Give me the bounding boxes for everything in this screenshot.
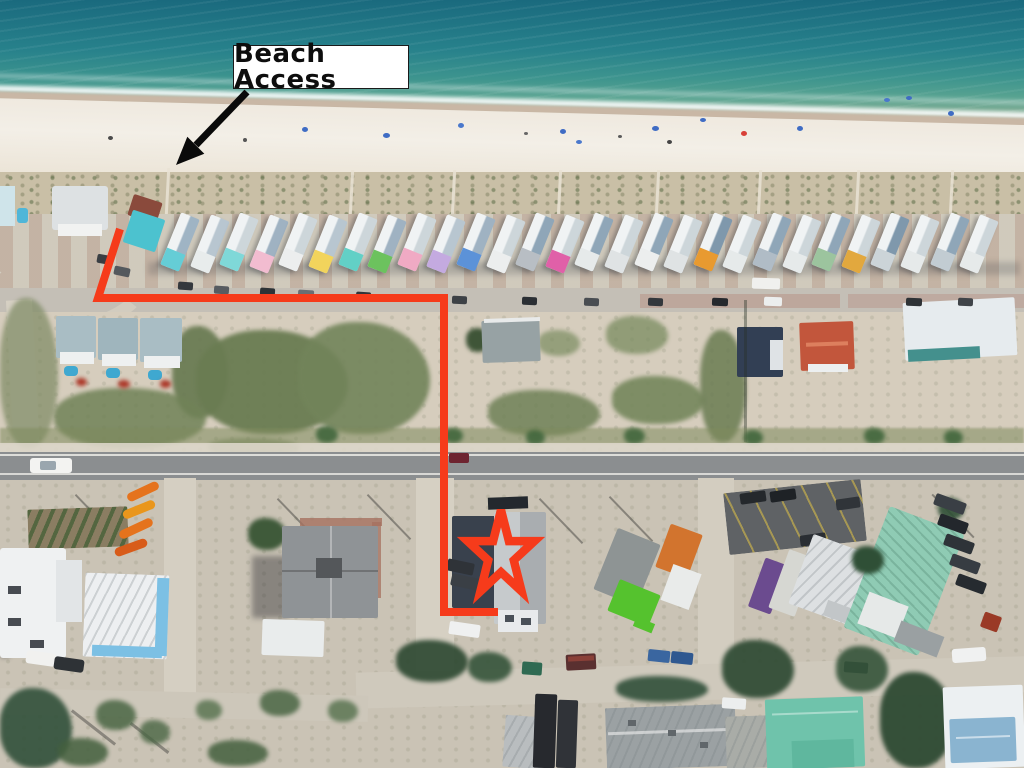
white-blue-house-roof (949, 717, 1016, 763)
car-maroon (449, 453, 469, 463)
white-shed (261, 619, 324, 657)
scrub (298, 322, 430, 434)
van-white (952, 647, 987, 663)
dark-trees (836, 646, 888, 692)
fence-shadow (744, 300, 747, 442)
car-dark (522, 297, 537, 306)
palm-tree (852, 546, 884, 574)
pool (64, 366, 78, 376)
car-gray (214, 285, 230, 294)
dark-trees (468, 652, 512, 682)
dark-trees (616, 676, 708, 702)
beach-umbrella-dot (560, 129, 566, 134)
gray-house-court (316, 558, 342, 578)
car-gray (584, 298, 599, 307)
pool (106, 368, 120, 378)
aerial-photo: Beach Access (0, 0, 1024, 768)
navy-building-porch (770, 340, 783, 370)
red-flowers (160, 380, 171, 388)
paver-tint (640, 294, 840, 308)
beach-umbrella-dot (383, 133, 390, 138)
car-blue (670, 651, 693, 665)
palm-tree (624, 428, 645, 444)
car-gray (298, 289, 315, 298)
shrub (208, 740, 268, 766)
shrub (328, 700, 358, 722)
beach-umbrella-dot (618, 135, 622, 138)
beach-umbrella-dot (797, 126, 803, 131)
window (8, 586, 21, 594)
garden-rows (27, 506, 128, 549)
beach-access-label: Beach Access (233, 45, 409, 89)
beach-umbrella-dot (302, 127, 308, 132)
dark-trees (396, 640, 468, 682)
sidewalk (0, 443, 1024, 452)
car-dark (452, 296, 467, 305)
car-dark (178, 281, 194, 290)
beach-umbrella-dot (948, 111, 954, 116)
scrub (606, 316, 668, 354)
palm-tree (444, 428, 463, 443)
car-dark (906, 298, 922, 307)
scrub (612, 376, 704, 424)
cottage-walls (144, 356, 180, 368)
beach-umbrella-dot (906, 96, 912, 100)
car-dark (356, 291, 372, 300)
trailer-dark (556, 700, 578, 768)
vent (668, 730, 676, 736)
subject-house-porch (498, 610, 538, 632)
scrub (538, 330, 580, 356)
road-edge-line (0, 454, 1024, 456)
solar-panels (488, 496, 528, 509)
beach-umbrella-dot (700, 118, 706, 122)
beach-umbrella-dot (576, 140, 582, 144)
car-dark (958, 298, 973, 307)
cottage-walls (60, 352, 94, 364)
teal-house-wing (792, 739, 855, 768)
beach-umbrella-dot (652, 126, 659, 131)
white-house-wing (56, 560, 82, 622)
beach-umbrella-dot (243, 138, 247, 142)
truck-white (764, 297, 782, 307)
car-blue (647, 649, 670, 663)
car-dark (712, 298, 728, 307)
pool (17, 208, 28, 223)
gray-building-roof (481, 319, 540, 363)
dumpster-teal (522, 661, 543, 675)
rv-white (752, 278, 780, 290)
red-roof-walls (808, 364, 848, 372)
tree (248, 518, 286, 550)
beach-umbrella-dot (524, 132, 528, 135)
car-windows (40, 461, 56, 470)
beach-umbrella-dot (667, 140, 672, 144)
cottage-walls (102, 354, 136, 366)
pool (148, 370, 162, 380)
porch-detail (505, 615, 514, 622)
road-edge-line (0, 473, 1024, 475)
red-flowers (76, 378, 87, 386)
beach-umbrella-dot (458, 123, 464, 128)
main-road (0, 452, 1024, 480)
trailer-dark (533, 694, 558, 768)
dark-trees (722, 640, 794, 698)
shrub (260, 690, 300, 716)
car-dark (648, 298, 663, 307)
beach-umbrella-dot (108, 136, 113, 140)
shrub (96, 700, 136, 730)
vent (700, 742, 708, 748)
beach-umbrella-dot (884, 98, 890, 102)
shrub (140, 720, 170, 744)
left-edge-building (0, 186, 15, 226)
car-dark (260, 287, 276, 296)
vent (628, 720, 636, 726)
window (30, 640, 44, 648)
corrugated-roof (725, 715, 771, 768)
car-white (722, 697, 747, 710)
palm-tree (864, 428, 885, 444)
palm-tree (316, 426, 338, 443)
paver-path (300, 518, 382, 526)
window (8, 618, 21, 626)
shrub (196, 700, 222, 720)
shrub (58, 738, 108, 766)
subject-house-roof (494, 512, 546, 624)
porch-detail (521, 618, 531, 625)
beach-umbrella-dot (741, 131, 747, 136)
red-flowers (118, 380, 130, 388)
